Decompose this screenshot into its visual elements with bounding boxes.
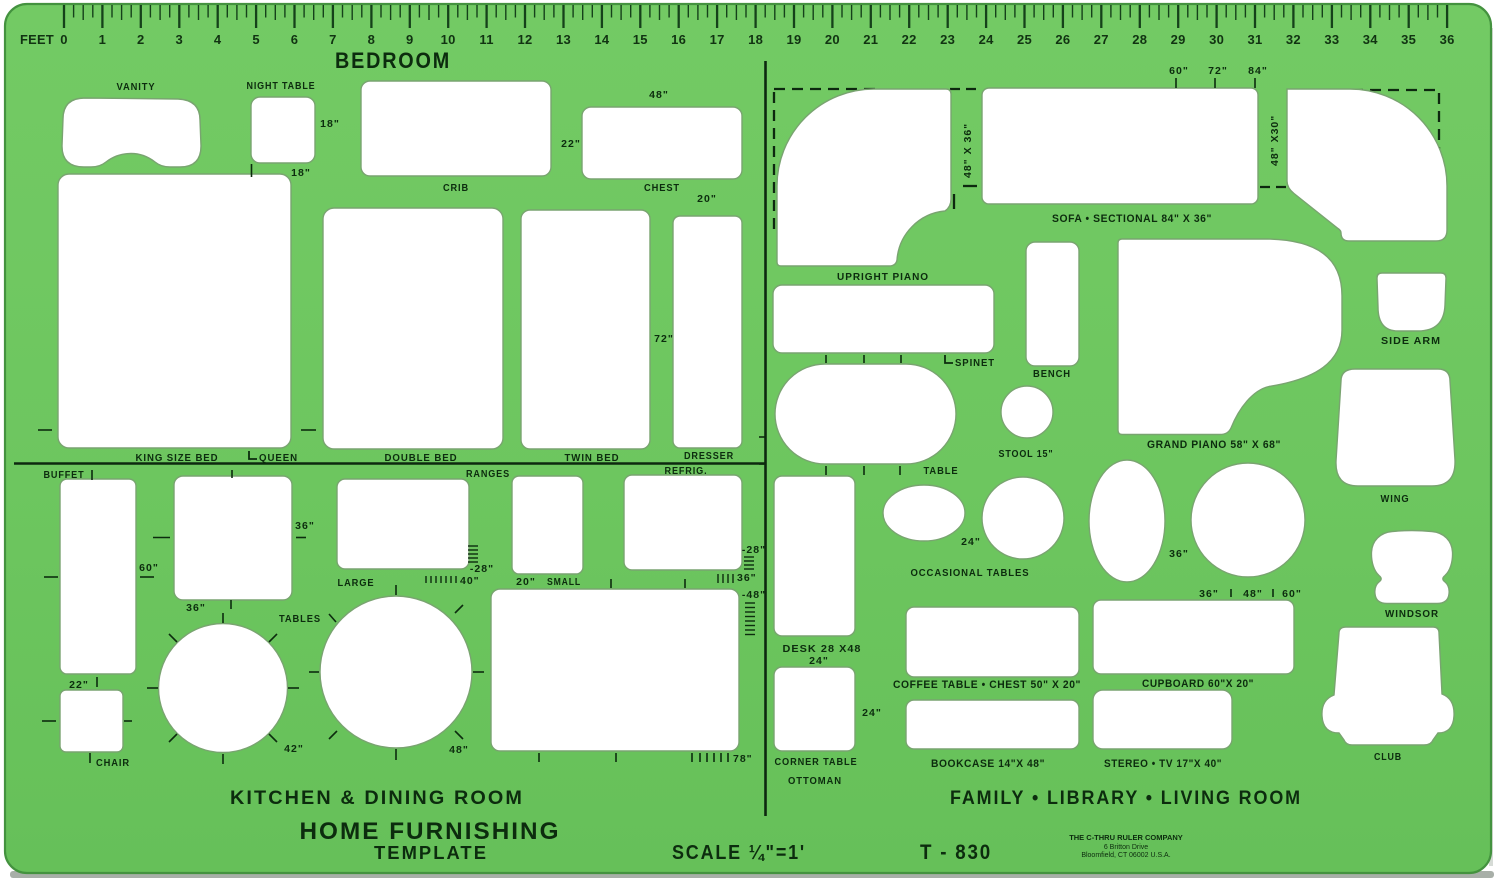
svg-text:36": 36": [1169, 548, 1189, 560]
svg-text:25: 25: [1017, 32, 1032, 47]
svg-text:16: 16: [671, 32, 686, 47]
svg-text:18": 18": [291, 167, 311, 179]
svg-text:CUPBOARD 60"X 20": CUPBOARD 60"X 20": [1142, 678, 1254, 690]
svg-text:COFFEE TABLE • CHEST 50" X 20": COFFEE TABLE • CHEST 50" X 20": [893, 679, 1081, 691]
svg-text:17: 17: [710, 32, 725, 47]
svg-text:36: 36: [1440, 32, 1455, 47]
svg-text:48" X30": 48" X30": [1269, 115, 1281, 166]
svg-text:10: 10: [441, 32, 456, 47]
svg-text:STEREO • TV 17"X 40": STEREO • TV 17"X 40": [1104, 758, 1222, 770]
svg-text:28: 28: [1132, 32, 1147, 47]
svg-text:-28": -28": [742, 544, 766, 556]
svg-text:T - 830: T - 830: [920, 841, 992, 864]
svg-text:BOOKCASE 14"X 48": BOOKCASE 14"X 48": [931, 758, 1045, 770]
svg-text:DOUBLE BED: DOUBLE BED: [385, 452, 458, 464]
svg-text:0: 0: [60, 32, 68, 47]
svg-text:WINDSOR: WINDSOR: [1385, 608, 1439, 620]
svg-text:3: 3: [176, 32, 184, 47]
svg-text:7: 7: [329, 32, 337, 47]
svg-text:29: 29: [1171, 32, 1186, 47]
svg-text:35: 35: [1401, 32, 1416, 47]
svg-text:34: 34: [1363, 32, 1379, 47]
svg-text:36": 36": [1199, 588, 1219, 600]
svg-text:26: 26: [1055, 32, 1070, 47]
svg-text:27: 27: [1094, 32, 1109, 47]
svg-text:OTTOMAN: OTTOMAN: [788, 775, 842, 787]
svg-text:TWIN BED: TWIN BED: [565, 452, 620, 464]
svg-text:BUFFET: BUFFET: [44, 469, 85, 481]
svg-text:20": 20": [516, 576, 536, 588]
svg-text:WING: WING: [1381, 493, 1410, 505]
svg-text:15: 15: [633, 32, 648, 47]
svg-text:18: 18: [748, 32, 763, 47]
svg-text:NIGHT TABLE: NIGHT TABLE: [247, 80, 316, 92]
svg-text:24": 24": [961, 536, 981, 548]
svg-text:-28": -28": [470, 563, 494, 575]
svg-text:36": 36": [186, 602, 206, 614]
svg-text:1: 1: [99, 32, 107, 47]
svg-text:20": 20": [697, 193, 717, 205]
svg-text:FAMILY • LIBRARY • LIVING ROOM: FAMILY • LIBRARY • LIVING ROOM: [950, 788, 1302, 809]
svg-text:REFRIG.: REFRIG.: [665, 465, 708, 477]
svg-text:12: 12: [517, 32, 532, 47]
svg-text:Bloomfield, CT 06002 U.S.A.: Bloomfield, CT 06002 U.S.A.: [1081, 852, 1170, 859]
svg-text:STOOL 15": STOOL 15": [999, 448, 1054, 460]
svg-text:13: 13: [556, 32, 571, 47]
svg-text:24": 24": [862, 707, 882, 719]
svg-text:HOME FURNISHING: HOME FURNISHING: [300, 818, 561, 845]
svg-text:24: 24: [979, 32, 995, 47]
svg-text:BENCH: BENCH: [1033, 368, 1071, 380]
svg-text:33: 33: [1324, 32, 1339, 47]
svg-text:23: 23: [940, 32, 955, 47]
svg-text:RANGES: RANGES: [466, 468, 510, 480]
svg-text:FEET: FEET: [20, 32, 54, 47]
svg-text:BEDROOM: BEDROOM: [335, 48, 451, 73]
svg-text:22": 22": [69, 679, 89, 691]
svg-text:UPRIGHT PIANO: UPRIGHT PIANO: [837, 271, 929, 283]
svg-text:36": 36": [295, 520, 315, 532]
svg-text:72": 72": [654, 333, 674, 345]
svg-text:30: 30: [1209, 32, 1224, 47]
svg-text:VANITY: VANITY: [117, 81, 156, 93]
svg-text:18": 18": [320, 118, 340, 130]
svg-text:48": 48": [649, 89, 669, 101]
svg-text:THE C-THRU RULER COMPANY: THE C-THRU RULER COMPANY: [1069, 833, 1183, 842]
svg-text:72": 72": [1208, 65, 1228, 77]
svg-text:KING SIZE BED: KING SIZE BED: [136, 452, 219, 464]
svg-text:11: 11: [479, 32, 493, 47]
svg-text:14: 14: [594, 32, 610, 47]
svg-text:QUEEN: QUEEN: [259, 452, 298, 464]
svg-text:84": 84": [1248, 65, 1268, 77]
svg-text:TEMPLATE: TEMPLATE: [374, 843, 488, 863]
svg-text:CRIB: CRIB: [443, 182, 469, 194]
svg-text:TABLES: TABLES: [279, 613, 321, 625]
svg-text:36": 36": [737, 572, 757, 584]
svg-text:SMALL: SMALL: [547, 576, 581, 588]
svg-text:6 Britton Drive: 6 Britton Drive: [1104, 844, 1148, 851]
svg-text:DRESSER: DRESSER: [684, 450, 734, 462]
svg-text:GRAND PIANO 58" X 68": GRAND PIANO 58" X 68": [1147, 439, 1281, 451]
svg-text:SCALE ¼"=1': SCALE ¼"=1': [672, 842, 806, 864]
svg-text:CORNER TABLE: CORNER TABLE: [775, 756, 858, 768]
svg-text:48": 48": [449, 744, 469, 756]
svg-text:CLUB: CLUB: [1374, 751, 1402, 763]
svg-text:5: 5: [252, 32, 260, 47]
svg-text:OCCASIONAL TABLES: OCCASIONAL TABLES: [911, 567, 1030, 579]
svg-text:60": 60": [139, 562, 159, 574]
svg-text:78": 78": [733, 753, 753, 765]
svg-text:21: 21: [863, 32, 878, 47]
svg-text:LARGE: LARGE: [338, 577, 375, 589]
svg-text:TABLE: TABLE: [924, 465, 959, 477]
svg-text:60": 60": [1282, 588, 1302, 600]
svg-text:19: 19: [786, 32, 801, 47]
svg-text:20: 20: [825, 32, 840, 47]
svg-text:SPINET: SPINET: [955, 357, 995, 369]
svg-text:CHEST: CHEST: [644, 182, 680, 194]
svg-text:42": 42": [284, 743, 304, 755]
svg-text:2: 2: [137, 32, 145, 47]
svg-text:24": 24": [809, 655, 829, 667]
svg-text:31: 31: [1247, 32, 1262, 47]
svg-text:SIDE ARM: SIDE ARM: [1381, 335, 1441, 347]
svg-text:48": 48": [1243, 588, 1263, 600]
svg-text:6: 6: [291, 32, 299, 47]
svg-text:4: 4: [214, 32, 222, 47]
svg-text:22": 22": [561, 138, 581, 150]
svg-text:8: 8: [368, 32, 376, 47]
svg-text:60": 60": [1169, 65, 1189, 77]
svg-text:SOFA • SECTIONAL 84" X 36": SOFA • SECTIONAL 84" X 36": [1052, 213, 1212, 225]
svg-text:32: 32: [1286, 32, 1301, 47]
svg-text:KITCHEN & DINING ROOM: KITCHEN & DINING ROOM: [230, 788, 524, 809]
svg-text:-48": -48": [742, 589, 766, 601]
svg-text:CHAIR: CHAIR: [96, 757, 130, 769]
svg-text:9: 9: [406, 32, 414, 47]
svg-text:40": 40": [460, 575, 480, 587]
svg-text:48" X 36": 48" X 36": [962, 123, 974, 178]
svg-text:22: 22: [902, 32, 917, 47]
svg-text:DESK 28 X48: DESK 28 X48: [783, 643, 862, 655]
